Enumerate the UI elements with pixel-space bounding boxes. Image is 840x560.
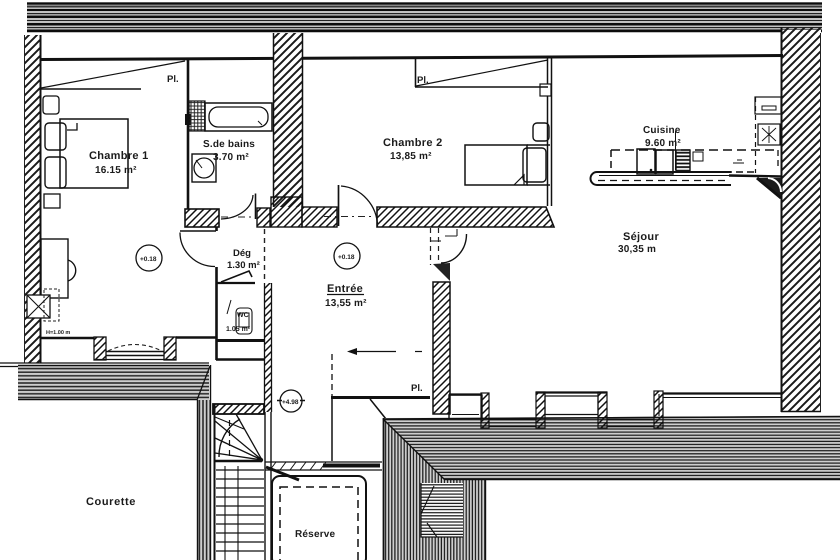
- svg-text:Pl.: Pl.: [411, 383, 423, 394]
- svg-text:13,55 m²: 13,55 m²: [325, 298, 367, 309]
- svg-text:Chambre 1: Chambre 1: [89, 150, 149, 162]
- svg-text:S.de bains: S.de bains: [203, 139, 255, 150]
- svg-text:+0.18: +0.18: [140, 256, 157, 263]
- svg-text:13,85 m²: 13,85 m²: [390, 151, 432, 162]
- svg-text:Réserve: Réserve: [295, 529, 336, 540]
- svg-text:9.60 m²: 9.60 m²: [645, 138, 681, 149]
- svg-text:Séjour: Séjour: [623, 231, 659, 243]
- svg-text:Pl.: Pl.: [417, 75, 429, 86]
- svg-text:30,35 m: 30,35 m: [618, 244, 656, 255]
- svg-text:WC: WC: [237, 312, 249, 319]
- svg-text:+4.98: +4.98: [282, 399, 299, 406]
- svg-text:Chambre 2: Chambre 2: [383, 137, 443, 149]
- svg-text:3.70 m²: 3.70 m²: [213, 152, 249, 163]
- svg-text:+0.18: +0.18: [338, 254, 355, 261]
- svg-text:1.30 m²: 1.30 m²: [227, 260, 260, 271]
- svg-text:Dég: Dég: [233, 248, 251, 259]
- svg-text:1.05 m²: 1.05 m²: [226, 326, 251, 333]
- svg-text:16.15 m²: 16.15 m²: [95, 165, 137, 176]
- svg-text:Cuisine: Cuisine: [643, 125, 681, 136]
- svg-text:H=1.00 m: H=1.00 m: [46, 330, 70, 336]
- svg-text:Entrée: Entrée: [327, 283, 363, 295]
- svg-text:Pl.: Pl.: [167, 74, 179, 85]
- svg-text:Courette: Courette: [86, 496, 136, 508]
